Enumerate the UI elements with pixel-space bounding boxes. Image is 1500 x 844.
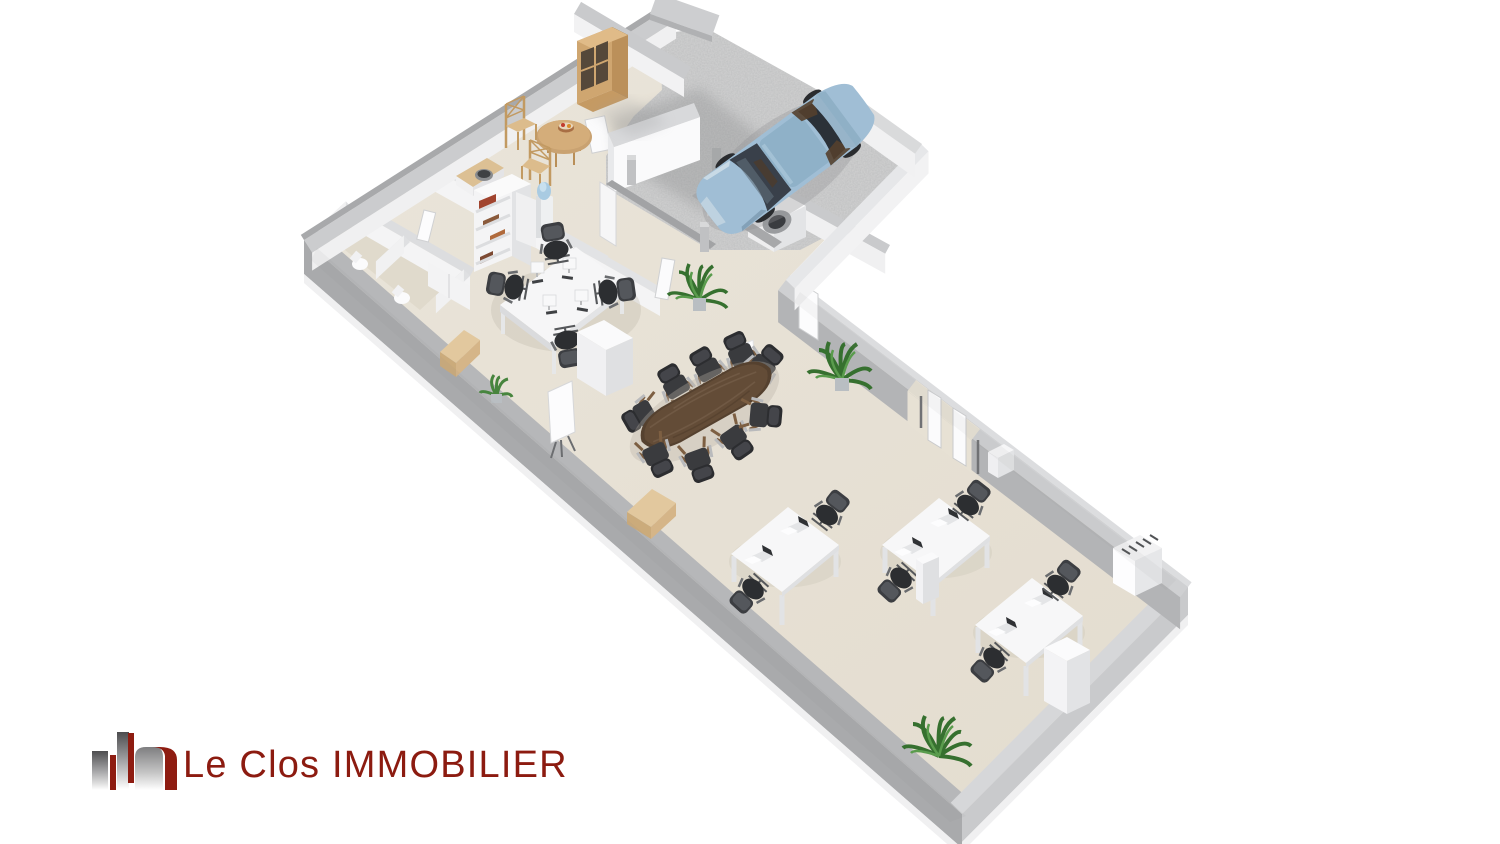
svg-text:Le Clos IMMOBILIER: Le Clos IMMOBILIER — [183, 744, 568, 786]
